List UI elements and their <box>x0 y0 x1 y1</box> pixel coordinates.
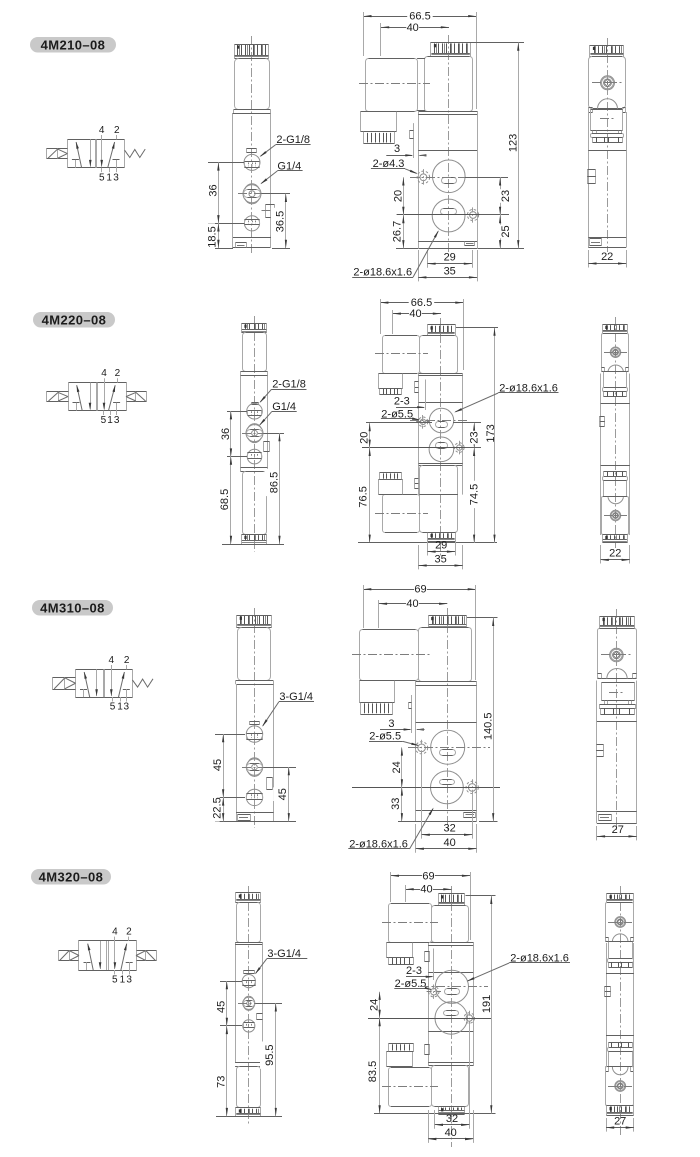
svg-text:69: 69 <box>422 870 434 882</box>
svg-text:4M320–08: 4M320–08 <box>39 869 104 884</box>
svg-text:123: 123 <box>508 134 520 152</box>
svg-text:3: 3 <box>394 143 400 155</box>
svg-text:22: 22 <box>609 548 621 560</box>
svg-text:74.5: 74.5 <box>469 484 481 505</box>
svg-text:4M310–08: 4M310–08 <box>40 600 105 615</box>
svg-text:5: 5 <box>99 172 105 183</box>
svg-text:27: 27 <box>614 1115 626 1127</box>
svg-text:36: 36 <box>208 184 220 196</box>
svg-text:2: 2 <box>126 927 132 938</box>
svg-text:1: 1 <box>107 415 113 426</box>
svg-text:3: 3 <box>113 172 119 183</box>
svg-text:69: 69 <box>414 584 426 596</box>
svg-text:2-G1/8: 2-G1/8 <box>272 379 306 391</box>
svg-text:40: 40 <box>420 884 432 896</box>
svg-text:40: 40 <box>406 598 418 610</box>
svg-text:29: 29 <box>435 540 447 552</box>
svg-text:32: 32 <box>443 823 455 835</box>
svg-text:23: 23 <box>469 431 481 443</box>
svg-text:45: 45 <box>277 788 289 800</box>
svg-text:173: 173 <box>485 424 497 442</box>
svg-text:24: 24 <box>369 999 381 1011</box>
svg-text:26.7: 26.7 <box>392 221 404 242</box>
svg-text:23: 23 <box>500 190 512 202</box>
svg-text:3: 3 <box>388 718 394 730</box>
svg-text:1: 1 <box>117 702 123 713</box>
svg-text:40: 40 <box>409 308 421 320</box>
svg-text:40: 40 <box>445 1127 457 1139</box>
svg-text:25: 25 <box>500 225 512 237</box>
svg-text:20: 20 <box>359 432 371 444</box>
svg-text:4: 4 <box>99 125 105 136</box>
svg-text:2: 2 <box>115 368 121 379</box>
svg-text:3: 3 <box>114 415 120 426</box>
svg-text:2-3: 2-3 <box>394 396 410 408</box>
svg-text:22: 22 <box>601 251 613 263</box>
svg-text:45: 45 <box>212 759 224 771</box>
svg-text:2: 2 <box>124 655 130 666</box>
svg-text:27: 27 <box>612 824 624 836</box>
svg-text:83.5: 83.5 <box>367 1061 379 1082</box>
svg-text:5: 5 <box>112 975 118 986</box>
svg-text:29: 29 <box>444 252 456 264</box>
svg-text:68.5: 68.5 <box>219 489 231 510</box>
svg-text:22.5: 22.5 <box>211 797 223 818</box>
svg-text:33: 33 <box>390 798 402 810</box>
svg-text:4M210–08: 4M210–08 <box>41 37 106 52</box>
svg-text:86.5: 86.5 <box>268 472 280 493</box>
svg-text:35: 35 <box>434 554 446 566</box>
svg-text:45: 45 <box>216 1001 228 1013</box>
svg-text:2-ø18.6x1.6: 2-ø18.6x1.6 <box>353 267 412 279</box>
svg-text:3: 3 <box>126 975 132 986</box>
svg-text:18.5: 18.5 <box>207 226 219 247</box>
svg-text:36: 36 <box>220 428 232 440</box>
svg-text:40: 40 <box>407 22 419 34</box>
svg-text:4: 4 <box>112 927 118 938</box>
svg-text:5: 5 <box>101 415 107 426</box>
svg-text:191: 191 <box>481 995 493 1013</box>
svg-text:20: 20 <box>393 190 405 202</box>
svg-text:95.5: 95.5 <box>264 1044 276 1065</box>
svg-text:1: 1 <box>106 172 112 183</box>
svg-text:40: 40 <box>443 837 455 849</box>
svg-text:32: 32 <box>446 1113 458 1125</box>
svg-text:5: 5 <box>110 702 116 713</box>
svg-text:73: 73 <box>216 1076 228 1088</box>
svg-text:2: 2 <box>114 125 120 136</box>
svg-text:35: 35 <box>444 265 456 277</box>
svg-text:1: 1 <box>120 975 126 986</box>
svg-text:4: 4 <box>109 655 115 666</box>
svg-text:3: 3 <box>124 702 130 713</box>
svg-text:4: 4 <box>101 368 107 379</box>
svg-text:2-ø5.5: 2-ø5.5 <box>369 731 401 743</box>
svg-text:36.5: 36.5 <box>275 211 287 232</box>
svg-text:2-3: 2-3 <box>406 965 422 977</box>
svg-text:76.5: 76.5 <box>357 486 369 507</box>
svg-text:4M220–08: 4M220–08 <box>42 312 107 327</box>
svg-text:24: 24 <box>391 761 403 773</box>
svg-text:140.5: 140.5 <box>482 713 494 741</box>
